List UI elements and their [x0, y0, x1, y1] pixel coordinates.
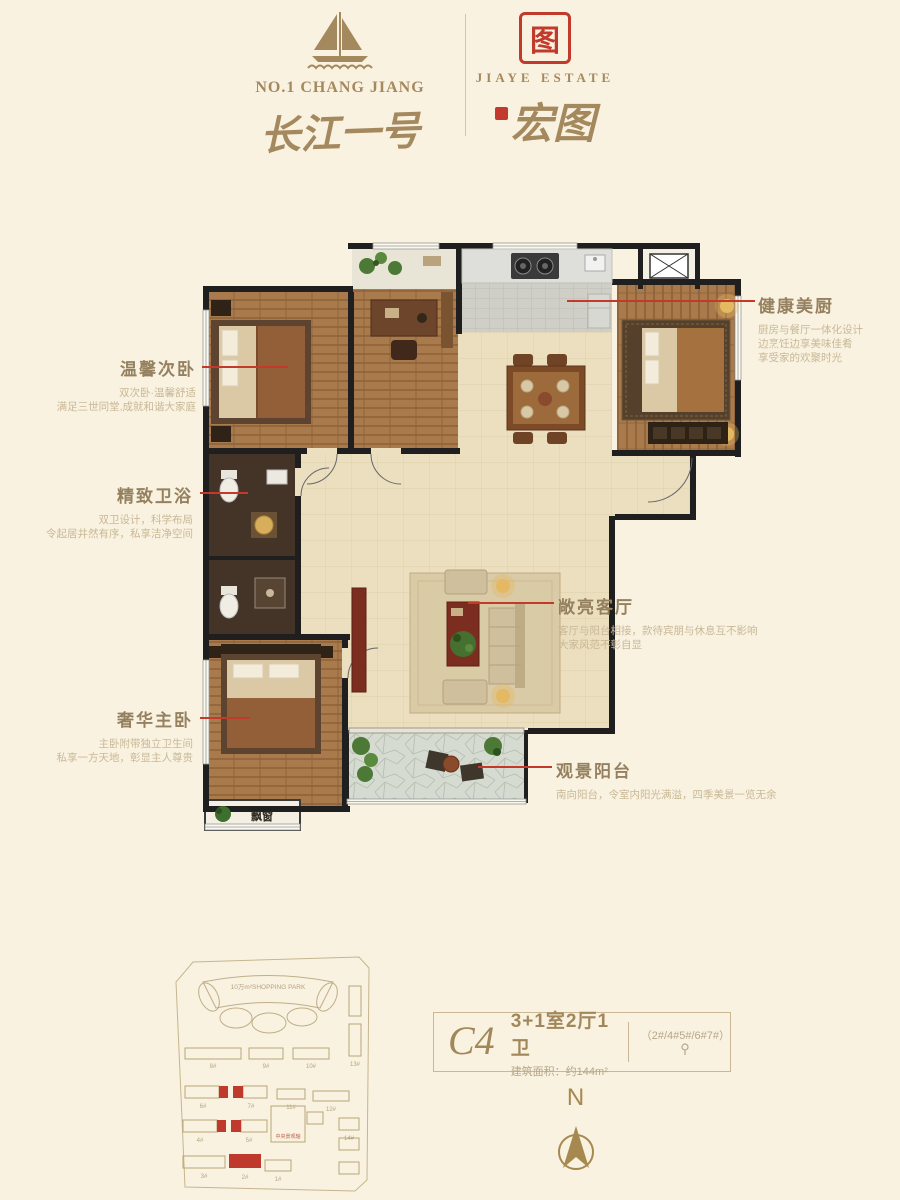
elevator-icon	[650, 254, 688, 278]
svg-text:9#: 9#	[263, 1064, 270, 1070]
jiaye-name-cn: 宏图	[460, 90, 630, 151]
mini-seal-icon	[495, 107, 508, 120]
svg-text:8#: 8#	[210, 1064, 217, 1070]
unit-code: C4	[434, 1017, 511, 1068]
svg-text:7#: 7#	[248, 1104, 255, 1110]
annotation-desc-line: 双次卧·温馨舒适	[26, 386, 196, 400]
pin-icon	[680, 1043, 690, 1055]
svg-text:5#: 5#	[246, 1138, 253, 1144]
annotation-title: 健康美厨	[758, 292, 898, 317]
annotation-title: 观景阳台	[556, 757, 856, 782]
unit-info-box: C4 3+1室2厅1卫 建筑面积：约144m² （2#/4#5#/6#7#）	[433, 1012, 731, 1072]
annotation-title: 奢华主卧	[13, 706, 193, 731]
kitchen-counter	[462, 249, 612, 283]
jiaye-logo: 图 JIAYE ESTATE 宏图	[460, 12, 630, 151]
annotation-master-bedroom: 奢华主卧 主卧附带独立卫生间 私享一方天地，彰显主人尊贵	[13, 706, 193, 765]
annotation-desc-line: 边烹饪边享美味佳肴	[758, 337, 898, 351]
changjiang-name-cn: 长江一号	[239, 98, 441, 163]
svg-text:2#: 2#	[242, 1175, 249, 1181]
dining-set	[507, 354, 585, 444]
annotation-desc-line: 南向阳台，令室内阳光满溢，四季美景一览无余	[556, 788, 856, 802]
annotation-title: 敞亮客厅	[558, 593, 858, 618]
annotation-living-room: 敞亮客厅 客厅与阳台相接，款待宾朋与休息互不影响 大家风范不彰自显	[558, 593, 858, 652]
svg-text:10#: 10#	[306, 1064, 317, 1070]
shopping-park-label: 10万m²SHOPPING PARK	[231, 983, 306, 991]
wardrobe	[648, 422, 728, 444]
annotation-desc-line: 客厅与阳台相接，款待宾朋与休息互不影响	[558, 624, 858, 638]
unit-buildings-note: （2#/4#5#/6#7#）	[641, 1027, 730, 1058]
annotation-title: 精致卫浴	[13, 482, 193, 507]
svg-text:11#: 11#	[286, 1105, 296, 1111]
leader-line	[567, 300, 755, 302]
svg-text:13#: 13#	[350, 1062, 361, 1068]
annotation-desc-line: 双卫设计，科学布局	[13, 513, 193, 527]
floorplan: 飘窗	[195, 228, 747, 845]
leader-line	[200, 717, 250, 719]
annotation-balcony: 观景阳台 南向阳台，令室内阳光满溢，四季美景一览无余	[556, 757, 856, 802]
unit-area: 建筑面积：约144m²	[511, 1063, 614, 1079]
unit-layout: 3+1室2厅1卫	[511, 1006, 614, 1060]
svg-text:12#: 12#	[326, 1107, 337, 1113]
changjiang-logo: NO.1 CHANG JIANG 长江一号	[240, 12, 440, 159]
bay-window-label: 飘窗	[251, 809, 273, 823]
master-bed	[209, 644, 333, 754]
unit-info-divider	[628, 1022, 629, 1062]
siteplan-sketch: 10万m²SHOPPING PARK	[163, 948, 415, 1200]
annotation-kitchen: 健康美厨 厨房与餐厅一体化设计 边烹饪边享美味佳肴 享受家的欢聚时光	[758, 292, 898, 365]
jiaye-name-en: JIAYE ESTATE	[460, 70, 630, 86]
annotation-bathroom: 精致卫浴 双卫设计，科学布局 令起居井然有序，私享洁净空间	[13, 482, 193, 541]
compass-north-label: N	[546, 1084, 606, 1112]
compass: N	[546, 1084, 606, 1183]
leader-line	[202, 366, 288, 368]
leader-line	[468, 602, 554, 604]
annotation-title: 温馨次卧	[26, 355, 196, 380]
second-bedroom-bed	[211, 300, 311, 442]
svg-text:4#: 4#	[197, 1138, 204, 1144]
annotation-desc-line: 满足三世同堂,成就和谐大家庭	[26, 400, 196, 414]
svg-text:14#: 14#	[344, 1136, 355, 1142]
buildings-outline	[183, 986, 361, 1174]
annotation-desc-line: 大家风范不彰自显	[558, 638, 858, 652]
floorplan-brochure-page: NO.1 CHANG JIANG 长江一号 图 JIAYE ESTATE 宏图	[0, 0, 900, 1200]
annotation-second-bedroom: 温馨次卧 双次卧·温馨舒适 满足三世同堂,成就和谐大家庭	[26, 355, 196, 414]
siteplan-center-label: 中央景观轴	[275, 1133, 300, 1140]
annotation-desc-line: 享受家的欢聚时光	[758, 351, 898, 365]
annotation-desc-line: 主卧附带独立卫生间	[13, 737, 193, 751]
compass-icon	[548, 1112, 604, 1178]
svg-text:6#: 6#	[200, 1104, 207, 1110]
svg-text:1#: 1#	[275, 1177, 282, 1183]
leader-line	[200, 492, 248, 494]
annotation-desc-line: 令起居井然有序，私享洁净空间	[13, 527, 193, 541]
jiaye-seal-icon: 图	[519, 12, 571, 64]
sailboat-icon	[240, 12, 440, 79]
svg-text:3#: 3#	[201, 1174, 208, 1180]
changjiang-name-en: NO.1 CHANG JIANG	[240, 79, 440, 97]
annotation-desc-line: 私享一方天地，彰显主人尊贵	[13, 751, 193, 765]
leader-line	[478, 766, 552, 768]
annotation-desc-line: 厨房与餐厅一体化设计	[758, 323, 898, 337]
